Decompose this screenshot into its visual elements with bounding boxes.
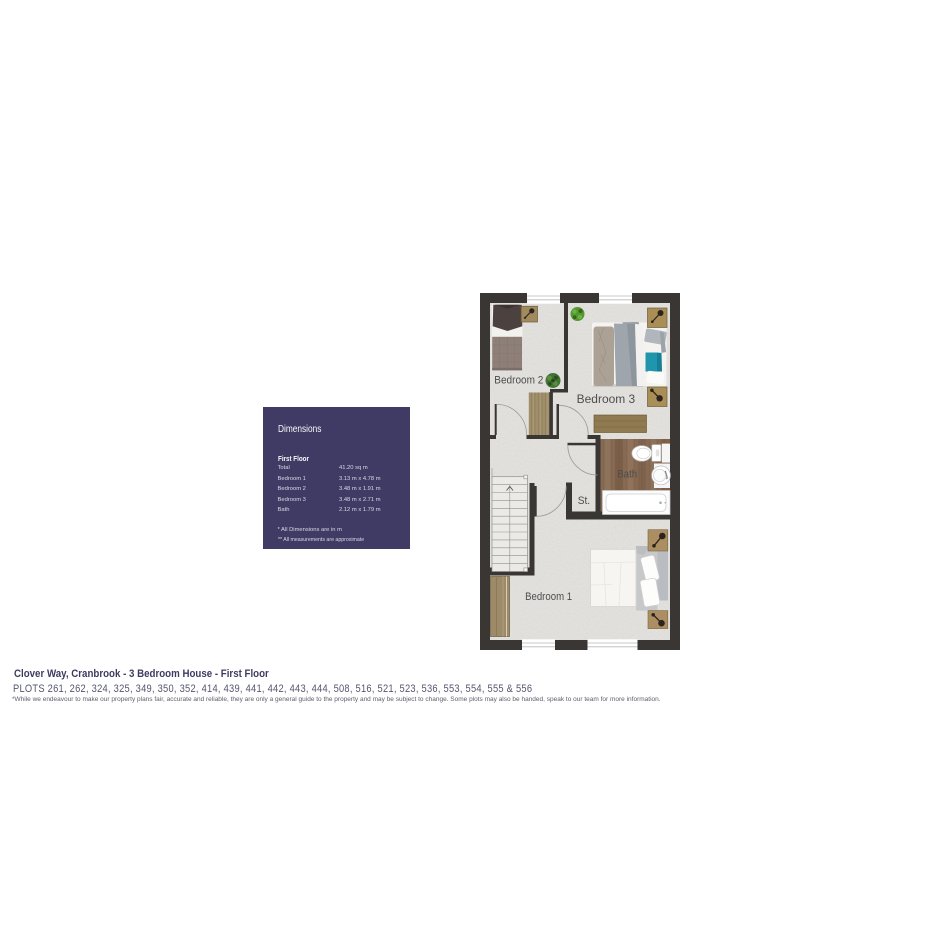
svg-text:Bedroom 3: Bedroom 3 (577, 394, 636, 406)
svg-text:Bath: Bath (617, 469, 637, 481)
svg-text:St.: St. (578, 495, 590, 507)
svg-text:Bedroom 1: Bedroom 1 (525, 591, 572, 603)
svg-text:Bedroom 2: Bedroom 2 (494, 375, 543, 387)
